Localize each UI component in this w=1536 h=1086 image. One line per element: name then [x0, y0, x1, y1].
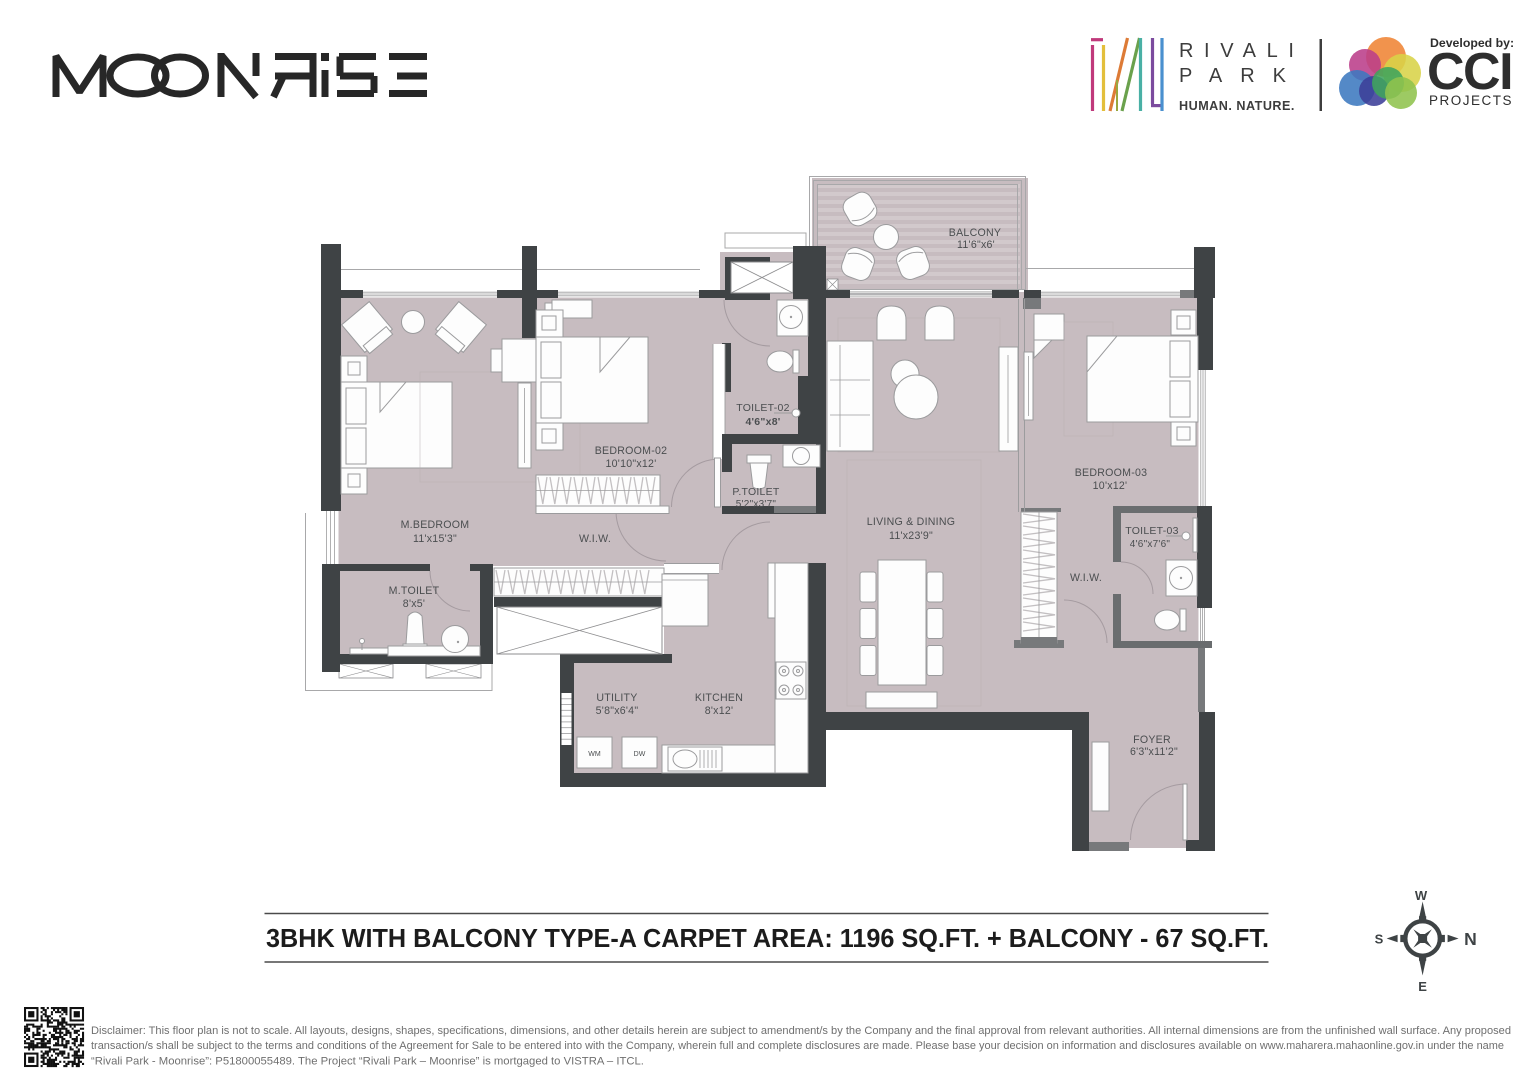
svg-text:“Rivali Park - Moonrise”: P518: “Rivali Park - Moonrise”: P51800055489. …: [91, 1055, 644, 1067]
svg-text:LIVING & DINING: LIVING & DINING: [867, 516, 956, 528]
svg-text:N: N: [1464, 929, 1477, 949]
svg-text:BEDROOM-02: BEDROOM-02: [595, 445, 668, 457]
svg-text:TOILET-03: TOILET-03: [1125, 525, 1178, 537]
svg-text:HUMAN. NATURE.: HUMAN. NATURE.: [1179, 99, 1295, 113]
svg-text:W.I.W.: W.I.W.: [1070, 572, 1102, 584]
svg-text:8'x12': 8'x12': [705, 705, 734, 717]
svg-text:FOYER: FOYER: [1133, 734, 1171, 746]
svg-text:4'6"x8': 4'6"x8': [745, 416, 780, 428]
svg-text:Disclaimer: This floor plan is: Disclaimer: This floor plan is not to sc…: [91, 1025, 1511, 1037]
svg-text:S: S: [1375, 932, 1384, 947]
svg-text:E: E: [1418, 979, 1427, 994]
svg-text:5'8"x6'4": 5'8"x6'4": [596, 705, 639, 717]
svg-text:6'3"x11'2": 6'3"x11'2": [1130, 746, 1178, 758]
svg-text:transaction/s shall be subject: transaction/s shall be subject to the te…: [91, 1040, 1504, 1052]
svg-text:11'x23'9": 11'x23'9": [889, 530, 933, 542]
svg-text:M.TOILET: M.TOILET: [389, 585, 440, 597]
svg-text:UTILITY: UTILITY: [596, 692, 637, 704]
svg-text:3BHK WITH BALCONY TYPE-A CARPE: 3BHK WITH BALCONY TYPE-A CARPET AREA: 11…: [266, 925, 1269, 953]
svg-text:BALCONY: BALCONY: [949, 227, 1001, 239]
svg-text:11'6"x6': 11'6"x6': [957, 239, 995, 251]
svg-text:PROJECTS: PROJECTS: [1429, 93, 1513, 108]
svg-text:P.TOILET: P.TOILET: [732, 486, 779, 498]
svg-text:WM: WM: [588, 751, 601, 758]
svg-text:W.I.W.: W.I.W.: [579, 533, 611, 545]
svg-text:W: W: [1415, 888, 1428, 903]
svg-text:5'2"x3'7": 5'2"x3'7": [736, 499, 777, 510]
svg-text:DW: DW: [634, 751, 646, 758]
svg-text:10'x12': 10'x12': [1093, 480, 1128, 492]
svg-text:TOILET-02: TOILET-02: [736, 402, 789, 414]
svg-text:M.BEDROOM: M.BEDROOM: [401, 519, 470, 531]
svg-text:8'x5': 8'x5': [403, 598, 425, 610]
svg-text:4'6"x7'6": 4'6"x7'6": [1130, 539, 1171, 550]
svg-text:RIVALI: RIVALI: [1179, 40, 1304, 62]
svg-text:10'10"x12': 10'10"x12': [606, 458, 657, 470]
svg-text:11'x15'3": 11'x15'3": [413, 533, 457, 545]
svg-text:KITCHEN: KITCHEN: [695, 692, 743, 704]
svg-text:BEDROOM-03: BEDROOM-03: [1075, 467, 1148, 479]
svg-text:PARK: PARK: [1179, 65, 1304, 87]
